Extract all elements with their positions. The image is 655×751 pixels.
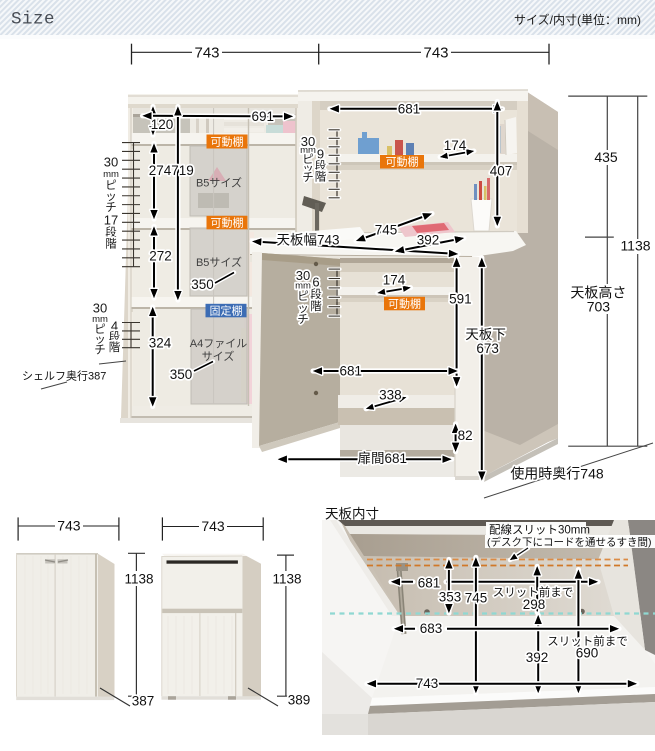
svg-text:681: 681 xyxy=(418,576,441,591)
svg-text:段: 段 xyxy=(105,225,117,239)
svg-text:B5サイズ: B5サイズ xyxy=(196,255,242,269)
svg-text:392: 392 xyxy=(526,650,549,665)
svg-text:mm: mm xyxy=(295,280,311,291)
svg-text:82: 82 xyxy=(458,428,473,443)
svg-text:階: 階 xyxy=(109,340,121,354)
svg-text:407: 407 xyxy=(490,164,513,179)
svg-text:743: 743 xyxy=(57,517,81,533)
svg-text:743: 743 xyxy=(416,676,439,691)
svg-text:591: 591 xyxy=(449,292,472,307)
svg-text:天板内寸: 天板内寸 xyxy=(325,506,379,521)
svg-text:174: 174 xyxy=(383,273,406,288)
svg-text:298: 298 xyxy=(523,597,546,612)
svg-text:可動棚: 可動棚 xyxy=(386,155,419,169)
svg-text:サイズ: サイズ xyxy=(202,349,235,363)
svg-text:扉間681: 扉間681 xyxy=(358,451,408,466)
svg-text:690: 690 xyxy=(576,646,599,661)
svg-text:719: 719 xyxy=(171,163,194,178)
svg-text:配線スリット30mm: 配線スリット30mm xyxy=(489,523,590,537)
svg-text:チ: チ xyxy=(94,344,106,357)
svg-text:174: 174 xyxy=(444,138,467,153)
svg-text:サイズ/内寸(単位：mm): サイズ/内寸(単位：mm) xyxy=(514,12,641,27)
svg-text:使用時奥行748: 使用時奥行748 xyxy=(510,465,604,481)
svg-text:Size: Size xyxy=(11,10,55,30)
svg-text:チ: チ xyxy=(297,313,309,326)
svg-text:681: 681 xyxy=(398,102,421,117)
svg-text:17: 17 xyxy=(104,213,118,228)
svg-text:mm: mm xyxy=(103,169,119,180)
svg-text:(デスク下にコードを通せるすき間): (デスク下にコードを通せるすき間) xyxy=(487,535,652,548)
svg-text:階: 階 xyxy=(105,237,117,251)
svg-text:392: 392 xyxy=(417,233,440,248)
svg-text:435: 435 xyxy=(594,149,618,165)
svg-text:691: 691 xyxy=(252,109,275,124)
svg-text:階: 階 xyxy=(310,299,322,313)
svg-text:1138: 1138 xyxy=(272,572,301,587)
svg-text:743: 743 xyxy=(423,45,448,62)
svg-text:1138: 1138 xyxy=(620,238,650,254)
svg-text:338: 338 xyxy=(379,388,402,403)
svg-text:683: 683 xyxy=(420,621,443,636)
svg-text:673: 673 xyxy=(476,341,499,356)
svg-text:段: 段 xyxy=(310,287,322,301)
svg-text:324: 324 xyxy=(149,336,172,351)
svg-text:天板幅743: 天板幅743 xyxy=(276,233,339,248)
svg-text:30: 30 xyxy=(104,155,118,170)
svg-text:6: 6 xyxy=(312,275,319,290)
svg-text:350: 350 xyxy=(170,367,193,382)
svg-text:ピ: ピ xyxy=(297,290,309,303)
svg-text:1138: 1138 xyxy=(124,572,153,587)
svg-text:274: 274 xyxy=(149,163,172,178)
svg-text:可動棚: 可動棚 xyxy=(211,215,244,229)
svg-text:743: 743 xyxy=(194,45,219,62)
svg-text:段: 段 xyxy=(315,159,327,173)
svg-text:350: 350 xyxy=(191,277,214,292)
svg-text:B5サイズ: B5サイズ xyxy=(196,176,242,190)
svg-text:可動棚: 可動棚 xyxy=(211,134,244,148)
svg-text:703: 703 xyxy=(587,298,611,314)
svg-text:681: 681 xyxy=(340,364,363,379)
svg-text:353: 353 xyxy=(439,590,462,605)
svg-text:387: 387 xyxy=(132,694,155,709)
svg-text:389: 389 xyxy=(288,693,311,708)
svg-text:天板下: 天板下 xyxy=(465,327,506,342)
svg-text:9: 9 xyxy=(317,147,324,162)
svg-text:272: 272 xyxy=(149,249,172,264)
svg-text:階: 階 xyxy=(315,170,327,184)
svg-text:シェルフ奥行387: シェルフ奥行387 xyxy=(22,368,106,382)
svg-text:A4ファイル: A4ファイル xyxy=(190,338,247,350)
svg-text:チ: チ xyxy=(302,171,314,184)
svg-text:120: 120 xyxy=(151,117,174,132)
svg-text:743: 743 xyxy=(201,518,225,534)
svg-text:745: 745 xyxy=(465,591,488,606)
svg-text:固定棚: 固定棚 xyxy=(210,303,243,317)
svg-text:745: 745 xyxy=(375,223,398,238)
svg-text:可動棚: 可動棚 xyxy=(388,296,421,310)
